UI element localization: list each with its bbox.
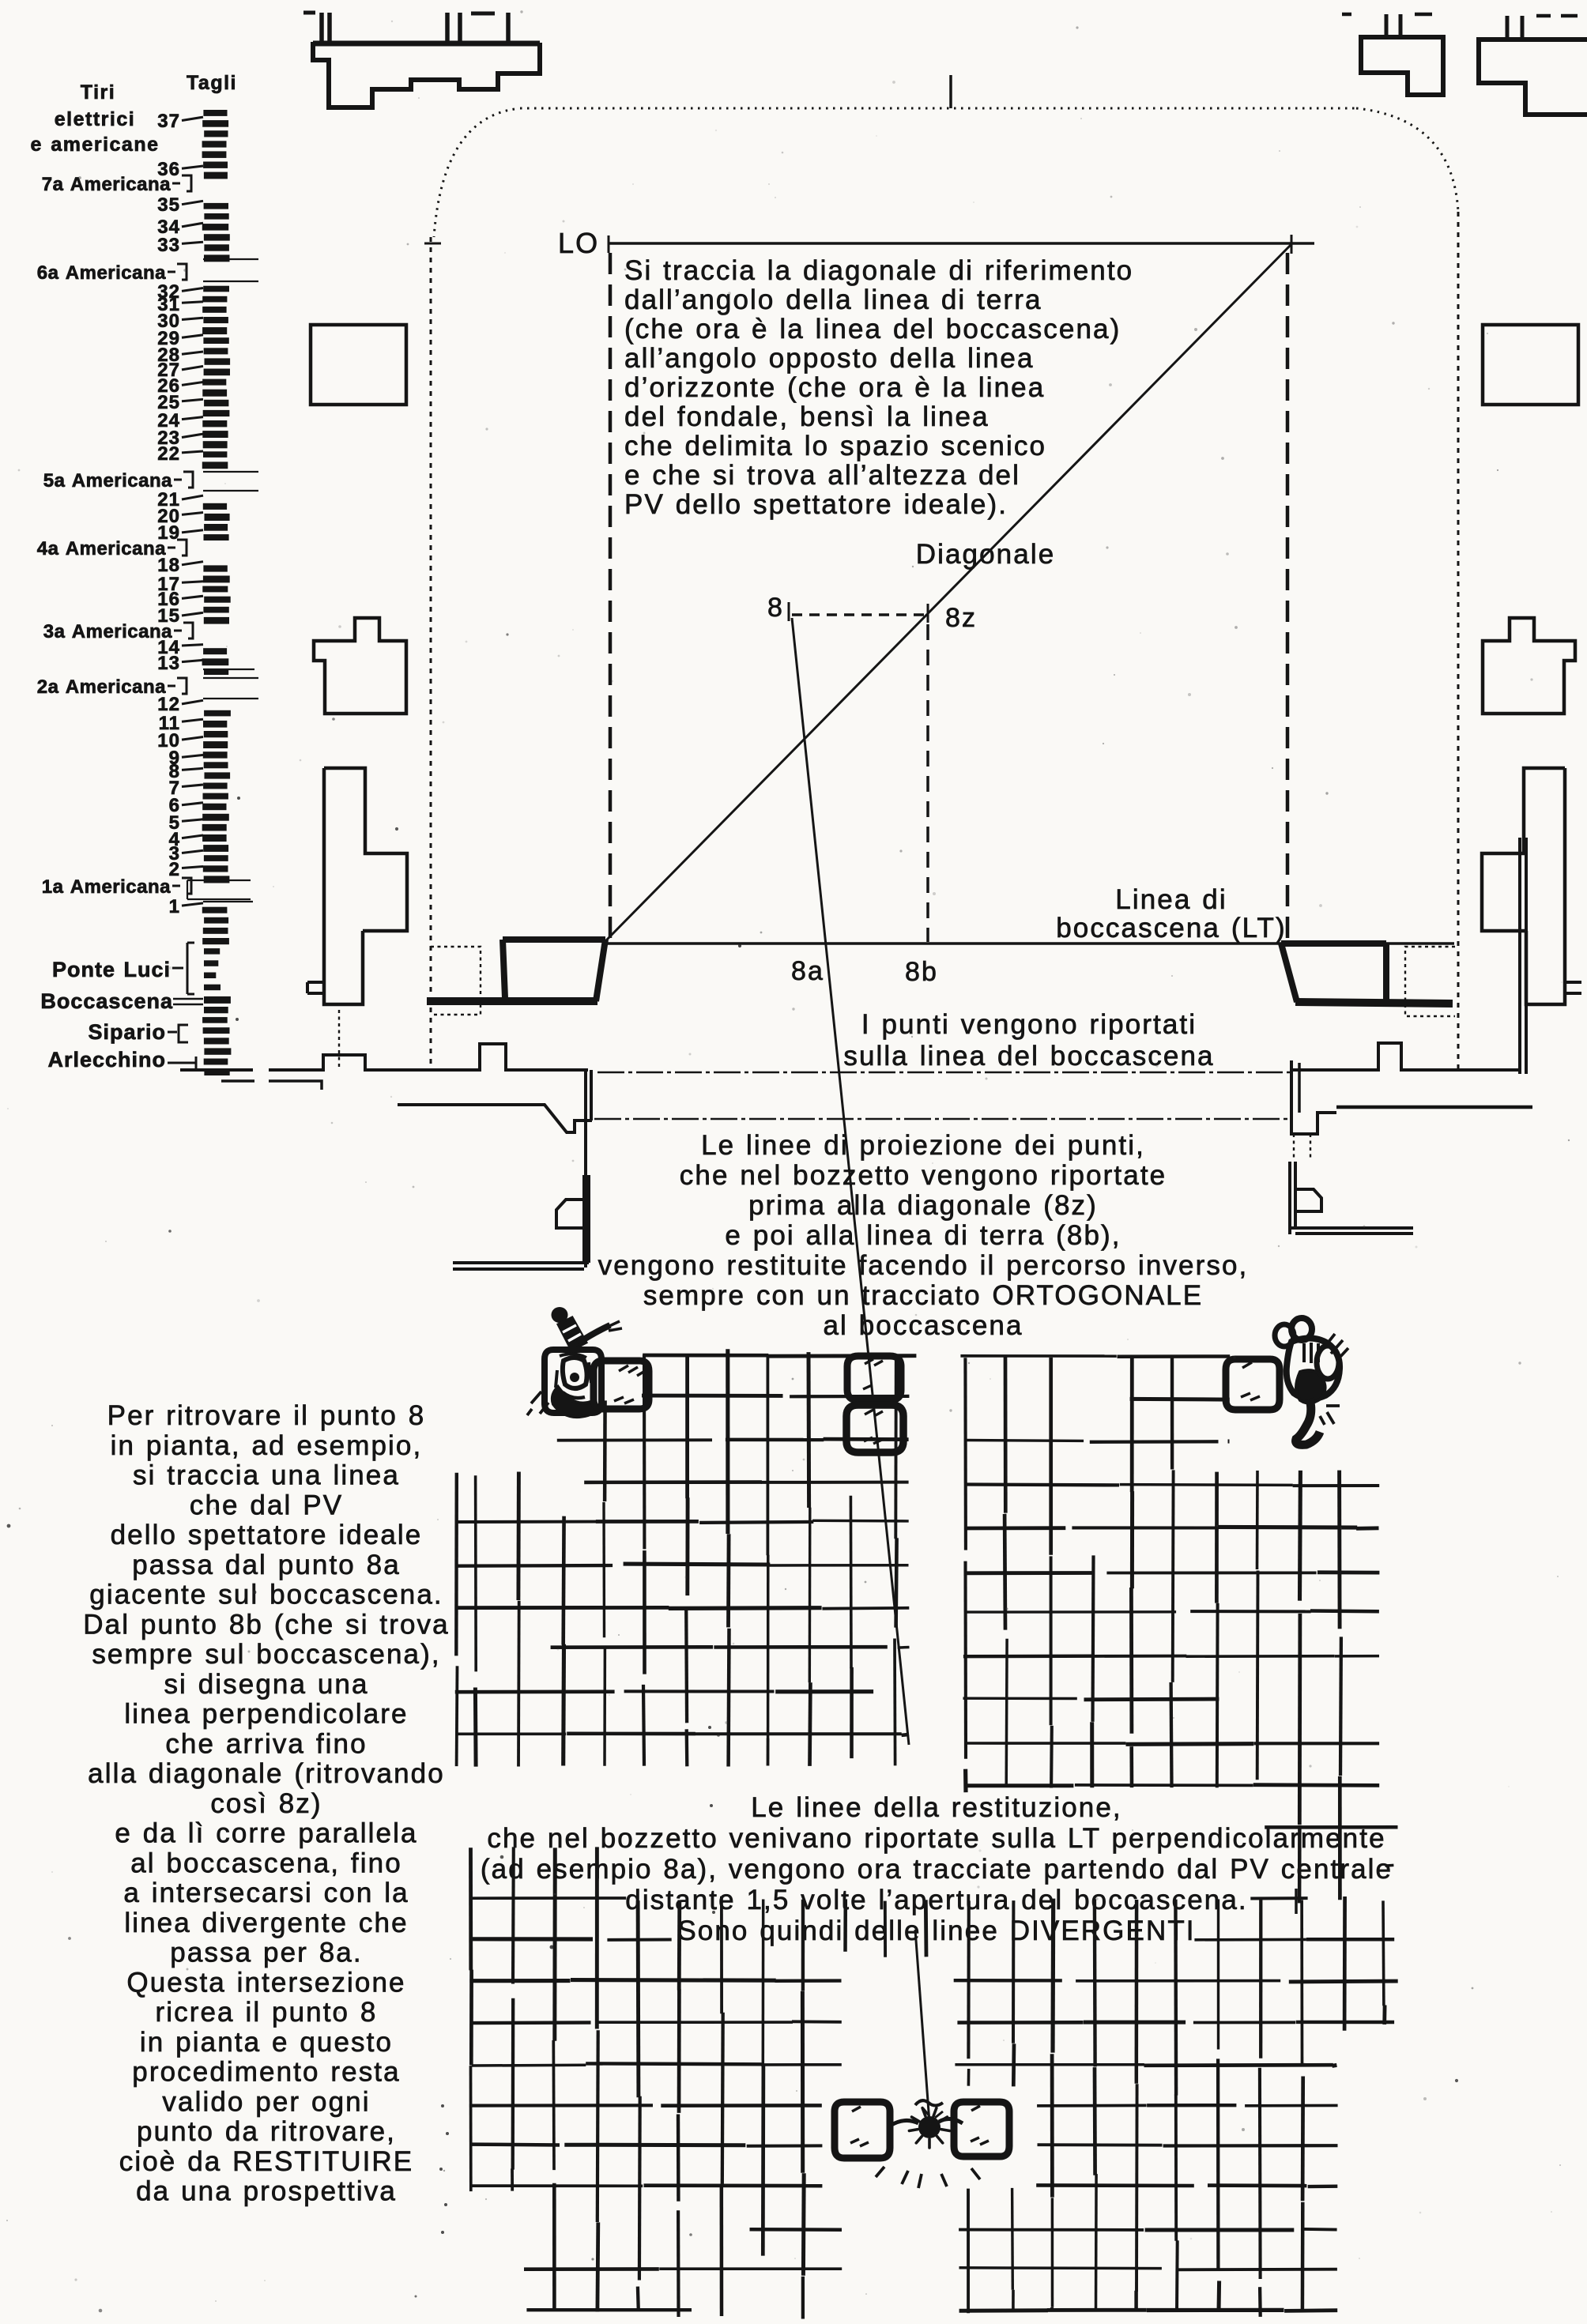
- svg-text:5a Americana: 5a Americana: [43, 470, 172, 492]
- svg-text:che dal PV: che dal PV: [190, 1490, 343, 1520]
- svg-text:35: 35: [157, 194, 180, 216]
- svg-text:in pianta, ad esempio,: in pianta, ad esempio,: [111, 1430, 423, 1461]
- svg-text:33: 33: [157, 235, 180, 256]
- svg-text:4a Americana: 4a Americana: [37, 538, 166, 559]
- svg-text:Tiri: Tiri: [81, 81, 115, 104]
- svg-text:7a Americana: 7a Americana: [42, 174, 171, 195]
- svg-text:Tagli: Tagli: [187, 72, 237, 94]
- svg-text:(che ora è la linea del boccas: (che ora è la linea del boccascena): [624, 314, 1121, 345]
- svg-text:1: 1: [169, 896, 180, 917]
- svg-text:alla diagonale (ritrovando: alla diagonale (ritrovando: [88, 1758, 445, 1789]
- svg-text:vengono restituite facendo il: vengono restituite facendo il percorso i…: [598, 1250, 1249, 1281]
- svg-text:Le linee della restituzione,: Le linee della restituzione,: [751, 1792, 1122, 1823]
- svg-text:22: 22: [157, 443, 180, 465]
- svg-text:procedimento resta: procedimento resta: [132, 2057, 400, 2088]
- svg-text:1a Americana: 1a Americana: [42, 876, 171, 898]
- svg-text:che arriva fino: che arriva fino: [165, 1728, 367, 1759]
- svg-text:giacente sul boccascena.: giacente sul boccascena.: [89, 1580, 443, 1610]
- svg-text:punto da ritrovare,: punto da ritrovare,: [137, 2116, 396, 2147]
- svg-text:e americane: e americane: [30, 134, 159, 156]
- svg-text:Per ritrovare il punto 8: Per ritrovare il punto 8: [107, 1400, 426, 1431]
- svg-text:e poi alla linea di terra (8b): e poi alla linea di terra (8b),: [725, 1220, 1121, 1251]
- svg-text:si disegna una: si disegna una: [164, 1669, 368, 1700]
- svg-text:8: 8: [767, 593, 784, 623]
- svg-text:e da lì corre parallela: e da lì corre parallela: [115, 1818, 417, 1849]
- svg-text:LO: LO: [558, 227, 599, 259]
- svg-text:Dal punto 8b (che si trova: Dal punto 8b (che si trova: [83, 1609, 449, 1640]
- svg-text:al boccascena: al boccascena: [823, 1310, 1023, 1341]
- svg-text:Diagonale: Diagonale: [916, 539, 1056, 570]
- svg-text:a intersecarsi con la: a intersecarsi con la: [123, 1878, 409, 1908]
- svg-text:che nel bozzetto vengono ripor: che nel bozzetto vengono riportate: [680, 1160, 1167, 1191]
- svg-text:all’angolo opposto della linea: all’angolo opposto della linea: [624, 343, 1035, 374]
- svg-text:e che si trova all’altezza del: e che si trova all’altezza del: [624, 460, 1020, 491]
- svg-text:3a Americana: 3a Americana: [43, 621, 172, 642]
- svg-text:Linea di: Linea di: [1115, 884, 1227, 915]
- svg-text:in pianta e questo: in pianta e questo: [140, 2027, 393, 2058]
- svg-text:13: 13: [157, 653, 180, 674]
- svg-text:8z: 8z: [945, 603, 977, 633]
- svg-text:sempre sul boccascena),: sempre sul boccascena),: [92, 1639, 440, 1670]
- svg-text:boccascena (LT): boccascena (LT): [1056, 913, 1287, 944]
- svg-text:Arlecchino: Arlecchino: [47, 1048, 166, 1072]
- svg-text:(ad esempio 8a), vengono ora t: (ad esempio 8a), vengono ora tracciate p…: [481, 1854, 1393, 1885]
- svg-text:prima alla diagonale (8z): prima alla diagonale (8z): [748, 1190, 1098, 1221]
- svg-text:PV dello spettatore ideale).: PV dello spettatore ideale).: [624, 489, 1008, 520]
- svg-text:così 8z): così 8z): [210, 1788, 322, 1819]
- svg-text:al boccascena, fino: al boccascena, fino: [130, 1848, 402, 1878]
- svg-text:si traccia una linea: si traccia una linea: [133, 1460, 400, 1491]
- svg-text:sulla linea del boccascena: sulla linea del boccascena: [843, 1041, 1214, 1072]
- svg-text:Boccascena: Boccascena: [40, 989, 173, 1013]
- svg-text:8b: 8b: [905, 957, 938, 987]
- svg-text:I punti vengono riportati: I punti vengono riportati: [861, 1009, 1197, 1040]
- svg-text:Sono quindi delle linee DIVERG: Sono quindi delle linee DIVERGENTI: [677, 1915, 1195, 1946]
- svg-text:2a Americana: 2a Americana: [37, 676, 166, 698]
- svg-text:sempre con un tracciato ORTOGO: sempre con un tracciato ORTOGONALE: [643, 1280, 1203, 1311]
- svg-text:Questa intersezione: Questa intersezione: [126, 1967, 405, 1998]
- svg-text:linea perpendicolare: linea perpendicolare: [124, 1699, 408, 1730]
- svg-text:dall’angolo della linea di ter: dall’angolo della linea di terra: [624, 284, 1042, 315]
- svg-text:37: 37: [157, 111, 180, 132]
- svg-text:linea divergente che: linea divergente che: [124, 1908, 408, 1938]
- svg-text:del fondale, bensì la linea: del fondale, bensì la linea: [624, 401, 990, 432]
- svg-text:che nel bozzetto venivano ripo: che nel bozzetto venivano riportate sull…: [487, 1823, 1385, 1854]
- svg-text:dello spettatore ideale: dello spettatore ideale: [111, 1520, 423, 1550]
- svg-text:distante 1,5 volte l’apertura: distante 1,5 volte l’apertura del boccas…: [625, 1885, 1247, 1915]
- svg-text:Le linee di proiezione dei pun: Le linee di proiezione dei punti,: [701, 1130, 1145, 1161]
- svg-text:che delimita lo spazio scenico: che delimita lo spazio scenico: [624, 431, 1046, 461]
- svg-text:Si traccia la diagonale di rif: Si traccia la diagonale di riferimento: [624, 255, 1133, 286]
- svg-text:cioè da RESTITUIRE: cioè da RESTITUIRE: [119, 2146, 413, 2177]
- svg-text:6a Americana: 6a Americana: [37, 262, 166, 284]
- svg-text:d’orizzonte (che ora è la line: d’orizzonte (che ora è la linea: [624, 372, 1045, 403]
- svg-text:passa per 8a.: passa per 8a.: [170, 1938, 362, 1968]
- svg-text:valido per ogni: valido per ogni: [162, 2086, 370, 2117]
- svg-text:Ponte Luci: Ponte Luci: [52, 958, 171, 981]
- svg-text:da una prospettiva: da una prospettiva: [136, 2176, 397, 2207]
- svg-text:elettrici: elettrici: [55, 108, 135, 130]
- svg-text:Sipario: Sipario: [88, 1020, 166, 1044]
- svg-text:8a: 8a: [791, 956, 824, 986]
- svg-text:ricrea il punto 8: ricrea il punto 8: [156, 1997, 378, 2028]
- svg-text:passa dal punto 8a: passa dal punto 8a: [132, 1550, 401, 1580]
